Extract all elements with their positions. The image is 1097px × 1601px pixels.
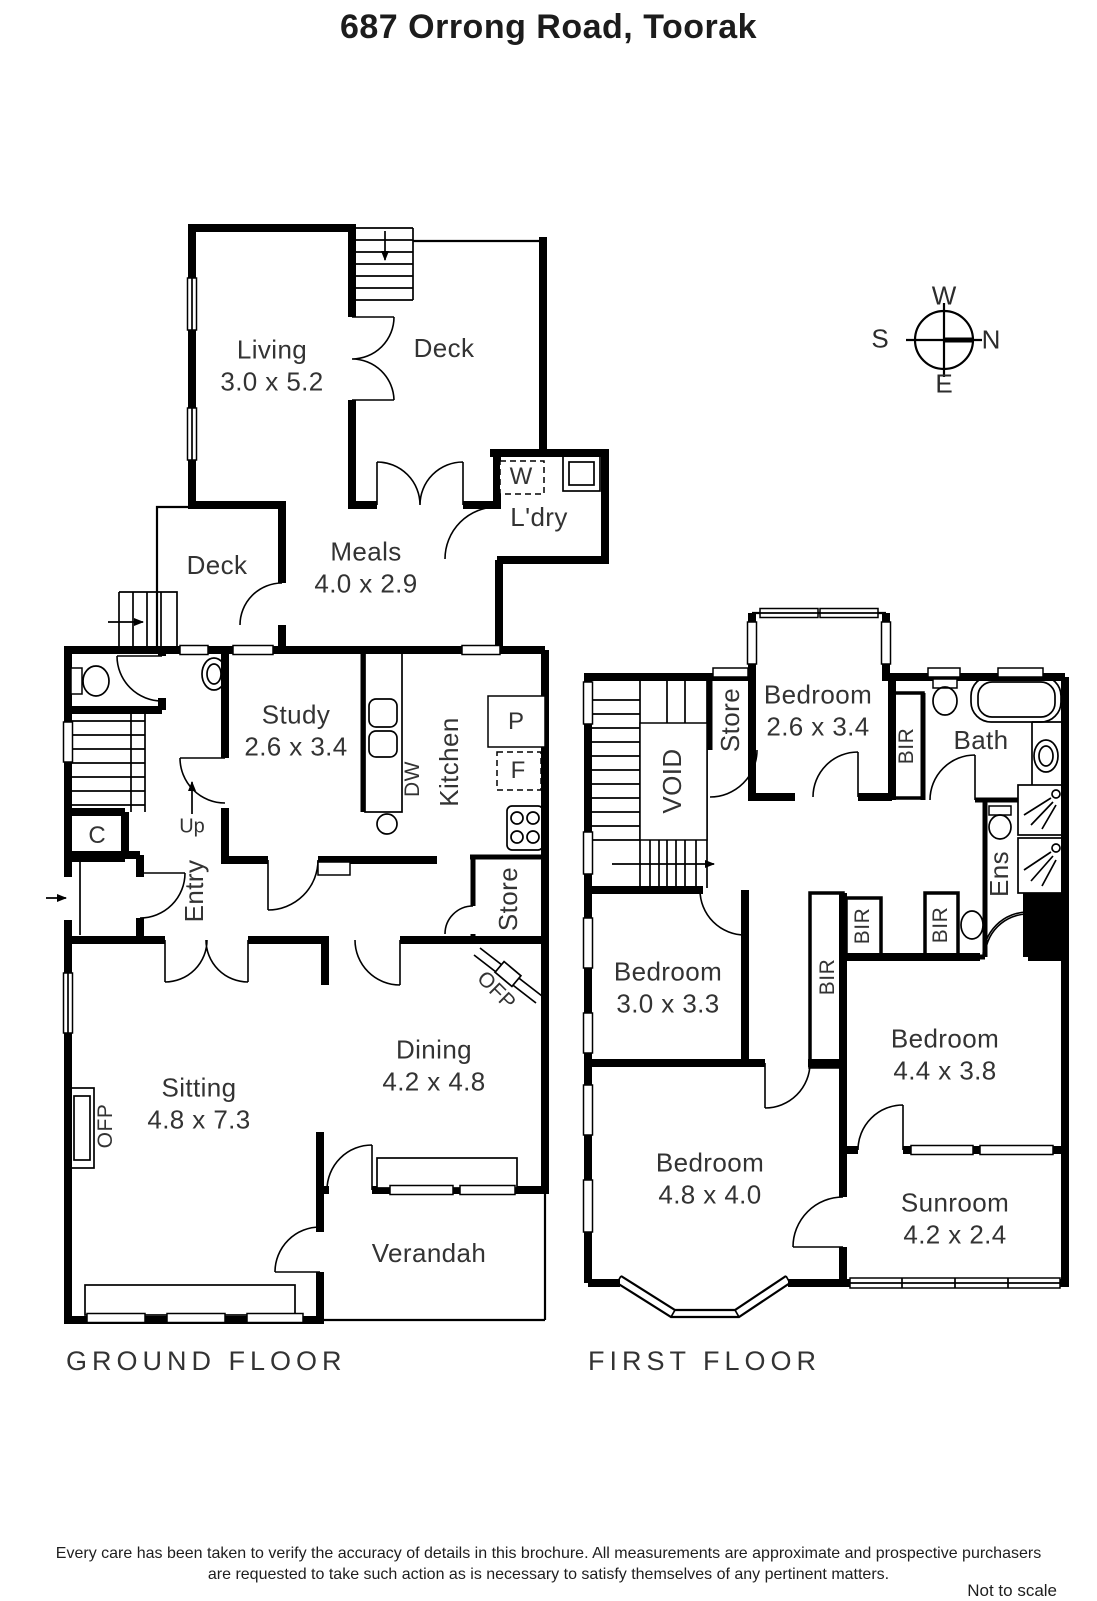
- room-dims: 3.0 x 3.3: [614, 988, 722, 1020]
- compass-south-label: S: [871, 324, 888, 355]
- room-dims: 4.2 x 2.4: [901, 1219, 1009, 1251]
- room-dims: 4.8 x 4.0: [656, 1179, 764, 1211]
- ground-floor-title: GROUND FLOOR: [66, 1346, 347, 1377]
- marker-bir-3: BIR: [851, 908, 875, 945]
- hearth-box: [318, 862, 350, 875]
- room-label-meals: Meals 4.0 x 2.9: [314, 536, 417, 599]
- room-name: Meals: [314, 536, 417, 568]
- scale-note: Not to scale: [967, 1581, 1057, 1601]
- ensuite-basin-icon: [961, 911, 983, 939]
- marker-fridge: F: [511, 757, 526, 785]
- floorplan-page: { "title": "687 Orrong Road, Toorak", "c…: [0, 0, 1097, 1600]
- first-floor-title: FIRST FLOOR: [588, 1346, 821, 1377]
- shower-icon: [1018, 838, 1065, 893]
- room-label-sitting: Sitting 4.8 x 7.3: [147, 1072, 250, 1135]
- compass-north-label: N: [982, 325, 1001, 356]
- room-name: Study: [244, 699, 347, 731]
- ensuite-toilet-icon: [989, 806, 1011, 839]
- room-name: Sitting: [147, 1072, 250, 1104]
- room-name: Dining: [382, 1034, 485, 1066]
- room-label-entry: Entry: [179, 860, 211, 923]
- bathtub-icon: [971, 676, 1061, 722]
- room-dims: 4.0 x 2.9: [314, 568, 417, 600]
- fireplace-sitting-icon: [70, 1088, 94, 1168]
- room-label-kitchen: Kitchen: [434, 717, 466, 807]
- ground-stairs-deck: [108, 592, 177, 650]
- ground-stairs-upper: [352, 228, 413, 300]
- room-label-bath: Bath: [953, 725, 1008, 757]
- room-label-living: Living 3.0 x 5.2: [220, 334, 323, 397]
- room-dims: 2.6 x 3.4: [764, 711, 872, 743]
- room-label-laundry: L'dry: [510, 502, 568, 534]
- marker-bir-1: BIR: [895, 728, 919, 765]
- marker-up: Up: [179, 816, 205, 839]
- marker-washer: W: [510, 463, 533, 491]
- room-label-bedroom-1: Bedroom 2.6 x 3.4: [764, 679, 872, 742]
- room-label-sunroom: Sunroom 4.2 x 2.4: [901, 1187, 1009, 1250]
- room-label-store-ground: Store: [493, 867, 525, 931]
- laundry-trough-icon: [563, 456, 600, 491]
- marker-dishwasher: DW: [401, 761, 425, 797]
- room-label-bedroom-2: Bedroom 3.0 x 3.3: [614, 956, 722, 1019]
- room-label-dining: Dining 4.2 x 4.8: [382, 1034, 485, 1097]
- room-label-bedroom-3: Bedroom 4.4 x 3.8: [891, 1023, 999, 1086]
- shower-icon: [1018, 785, 1065, 835]
- marker-pantry: P: [508, 708, 524, 736]
- marker-cupboard: C: [88, 822, 105, 850]
- room-label-study: Study 2.6 x 3.4: [244, 699, 347, 762]
- basin-icon: [1034, 740, 1058, 772]
- first-stairs: [590, 677, 714, 888]
- ground-stairs-mid: [68, 712, 192, 814]
- room-dims: 2.6 x 3.4: [244, 731, 347, 763]
- room-name: Bedroom: [764, 679, 872, 711]
- compass-west-label: W: [932, 281, 957, 312]
- room-label-deck-upper: Deck: [414, 333, 475, 365]
- stove-icon: [507, 806, 543, 850]
- room-label-ensuite: Ens: [984, 851, 1016, 897]
- room-dims: 3.0 x 5.2: [220, 366, 323, 398]
- room-label-verandah: Verandah: [372, 1238, 487, 1270]
- room-dims: 4.4 x 3.8: [891, 1055, 999, 1087]
- room-name: Bedroom: [614, 956, 722, 988]
- disclaimer-line-1: Every care has been taken to verify the …: [0, 1545, 1097, 1563]
- room-dims: 4.8 x 7.3: [147, 1104, 250, 1136]
- disclaimer-line-2: are requested to take such action as is …: [0, 1566, 1097, 1584]
- bay-window: [617, 1276, 790, 1317]
- room-name: Sunroom: [901, 1187, 1009, 1219]
- compass-icon: [906, 303, 982, 377]
- room-label-void: VOID: [657, 748, 689, 813]
- room-name: Living: [220, 334, 323, 366]
- compass-east-label: E: [935, 369, 952, 400]
- kitchen-sink-icon: [365, 652, 402, 812]
- room-label-bedroom-4: Bedroom 4.8 x 4.0: [656, 1147, 764, 1210]
- toilet-icon: [933, 679, 957, 715]
- room-name: Bedroom: [891, 1023, 999, 1055]
- marker-bir-2: BIR: [816, 959, 840, 996]
- room-name: Bedroom: [656, 1147, 764, 1179]
- vanity-nook: [1032, 722, 1065, 785]
- room-label-deck-lower: Deck: [187, 550, 248, 582]
- bir-wardrobes: [810, 693, 958, 1067]
- marker-ofp-sitting: OFP: [94, 1104, 118, 1149]
- room-dims: 4.2 x 4.8: [382, 1066, 485, 1098]
- toilet-icon: [71, 666, 109, 696]
- oven-icon: [377, 814, 397, 834]
- room-label-store-first: Store: [715, 688, 747, 752]
- marker-bir-4: BIR: [929, 907, 953, 944]
